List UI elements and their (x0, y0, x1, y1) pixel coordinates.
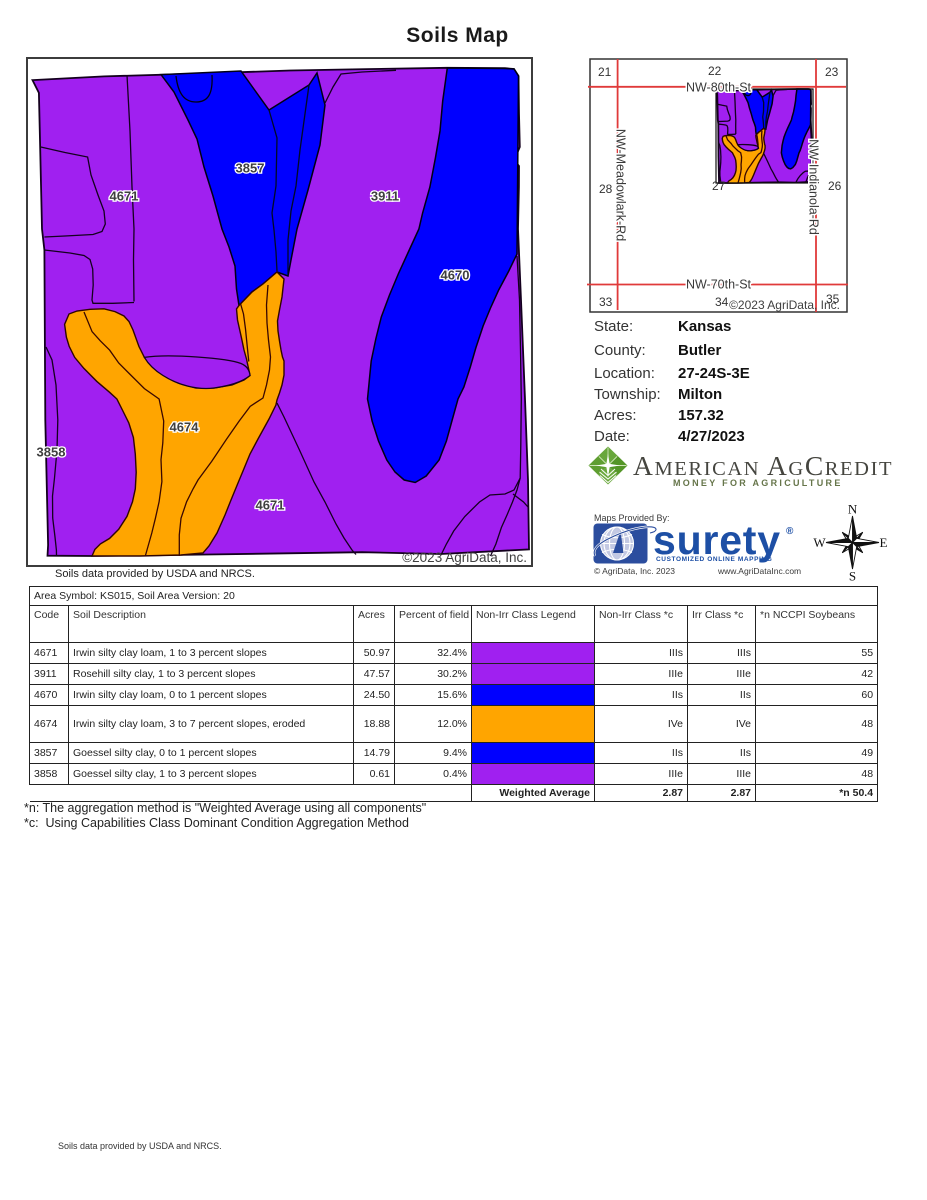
svg-text:S: S (849, 569, 856, 584)
svg-text:NW-70th-St: NW-70th-St (686, 278, 752, 292)
svg-text:23: 23 (825, 65, 839, 79)
svg-text:21: 21 (598, 65, 612, 79)
svg-text:NW-80th-St: NW-80th-St (686, 81, 752, 95)
svg-text:4671: 4671 (110, 189, 139, 204)
svg-text:3857: 3857 (236, 161, 265, 176)
svg-text:27: 27 (712, 179, 726, 193)
svg-text:3858: 3858 (37, 445, 66, 460)
svg-text:3911: 3911 (371, 189, 399, 204)
svg-text:34: 34 (715, 295, 729, 309)
svg-text:©2023 AgriData, Inc.: ©2023 AgriData, Inc. (729, 298, 840, 312)
svg-text:4671: 4671 (256, 498, 285, 513)
svg-text:26: 26 (828, 179, 842, 193)
svg-text:W: W (813, 535, 826, 550)
svg-text:©2023 AgriData, Inc.: ©2023 AgriData, Inc. (402, 550, 527, 565)
svg-text:N: N (848, 502, 858, 517)
svg-text:NW-Meadowlark-Rd: NW-Meadowlark-Rd (614, 129, 628, 241)
svg-text:33: 33 (599, 295, 613, 309)
svg-text:22: 22 (708, 64, 722, 78)
svg-text:4670: 4670 (441, 268, 470, 283)
svg-text:28: 28 (599, 182, 613, 196)
svg-text:NW-Indianola-Rd: NW-Indianola-Rd (807, 139, 821, 235)
svg-text:E: E (880, 535, 888, 550)
svg-text:4674: 4674 (170, 420, 200, 435)
